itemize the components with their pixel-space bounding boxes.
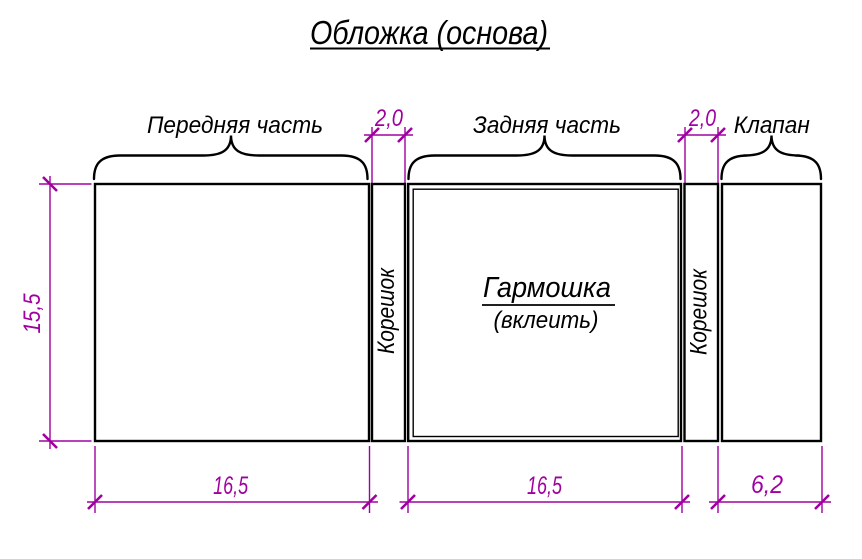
svg-text:2,0: 2,0 [374,105,403,132]
svg-text:Задняя часть: Задняя часть [473,112,621,139]
svg-text:Клапан: Клапан [734,112,810,139]
svg-text:Гармошка: Гармошка [483,272,611,304]
svg-text:2,0: 2,0 [688,105,716,132]
svg-text:Передняя часть: Передняя часть [147,112,323,139]
svg-text:Корешок: Корешок [373,267,400,354]
svg-text:6,2: 6,2 [751,471,783,499]
svg-text:(вклеить): (вклеить) [494,307,599,334]
svg-text:Обложка (основа): Обложка (основа) [310,14,548,51]
svg-text:16,5: 16,5 [213,472,248,500]
svg-text:Корешок: Корешок [686,268,713,355]
svg-text:15,5: 15,5 [19,293,46,334]
svg-text:16,5: 16,5 [527,472,562,500]
